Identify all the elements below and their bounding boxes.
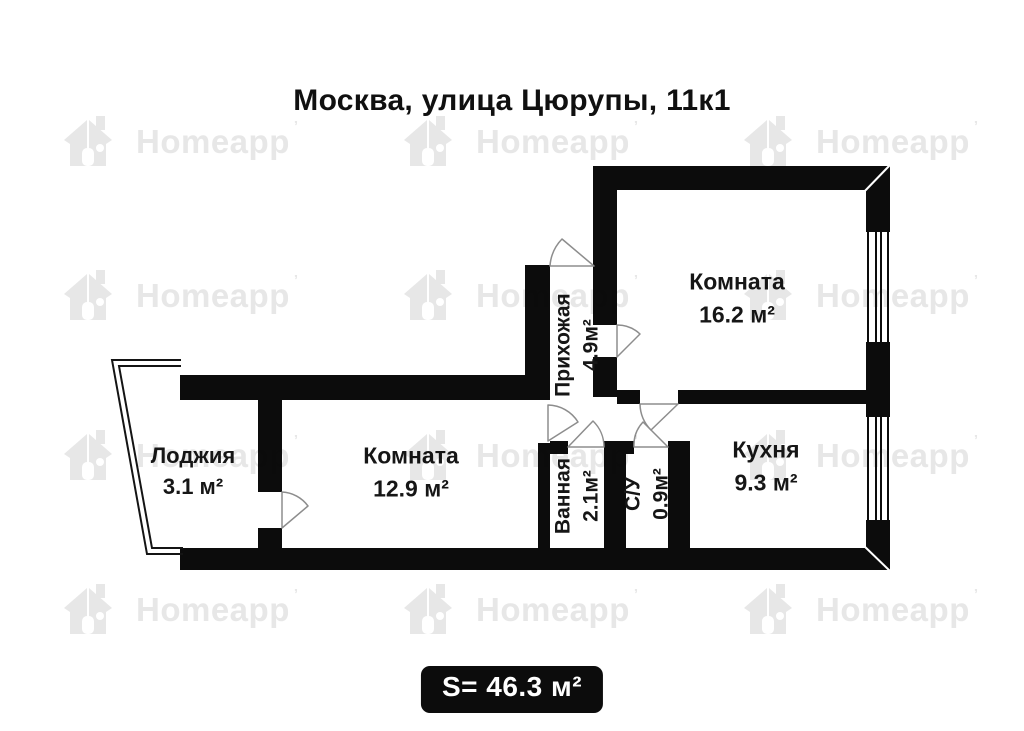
room-label-loggia: Лоджия 3.1 м² bbox=[151, 440, 236, 502]
total-area-badge: S= 46.3 м² bbox=[421, 666, 603, 713]
room-label-room1: Комната 16.2 м² bbox=[689, 265, 785, 330]
room-label-room2: Комната 12.9 м² bbox=[363, 439, 459, 504]
room-label-wc: С/У 0.9м² bbox=[620, 468, 677, 520]
room-area: 2.1м² bbox=[578, 458, 606, 534]
room-area: 12.9 м² bbox=[363, 472, 459, 505]
floorplan-page: Москва, улица Цюрупы, 11к1 bbox=[0, 0, 1024, 731]
room-area: 3.1 м² bbox=[151, 471, 236, 502]
room-name: Лоджия bbox=[151, 440, 236, 471]
room-name: Комната bbox=[363, 439, 459, 472]
room-name: Ванная bbox=[550, 458, 578, 534]
room-name: Прихожая bbox=[550, 293, 578, 397]
room-label-bathroom: Ванная 2.1м² bbox=[550, 458, 607, 534]
room-area: 0.9м² bbox=[648, 468, 676, 520]
room-name: Комната bbox=[689, 265, 785, 298]
room-area: 16.2 м² bbox=[689, 298, 785, 331]
room-label-hallway: Прихожая 4.9м² bbox=[550, 293, 607, 397]
room-label-kitchen: Кухня 9.3 м² bbox=[732, 433, 799, 498]
room-area: 4.9м² bbox=[578, 293, 606, 397]
room-name: Кухня bbox=[732, 433, 799, 466]
room-name: С/У bbox=[620, 468, 648, 520]
room-area: 9.3 м² bbox=[732, 466, 799, 499]
floor-plan bbox=[0, 0, 1024, 731]
